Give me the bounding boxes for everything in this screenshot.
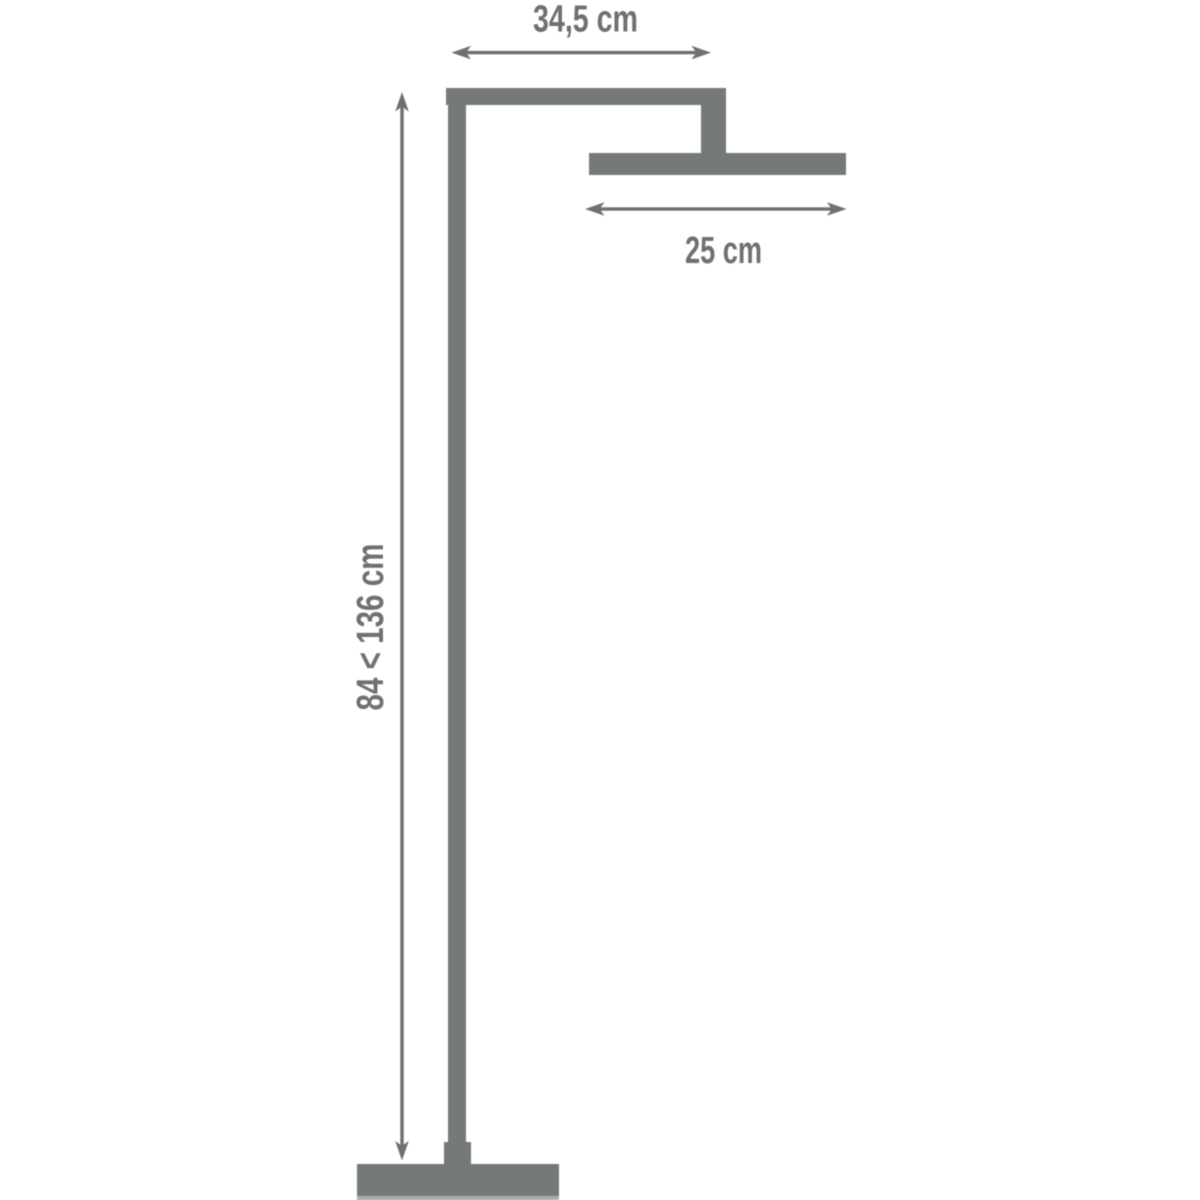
svg-text:34,5 cm: 34,5 cm <box>533 0 638 41</box>
svg-text:84 < 136 cm: 84 < 136 cm <box>350 544 392 711</box>
svg-text:25 cm: 25 cm <box>685 230 762 272</box>
